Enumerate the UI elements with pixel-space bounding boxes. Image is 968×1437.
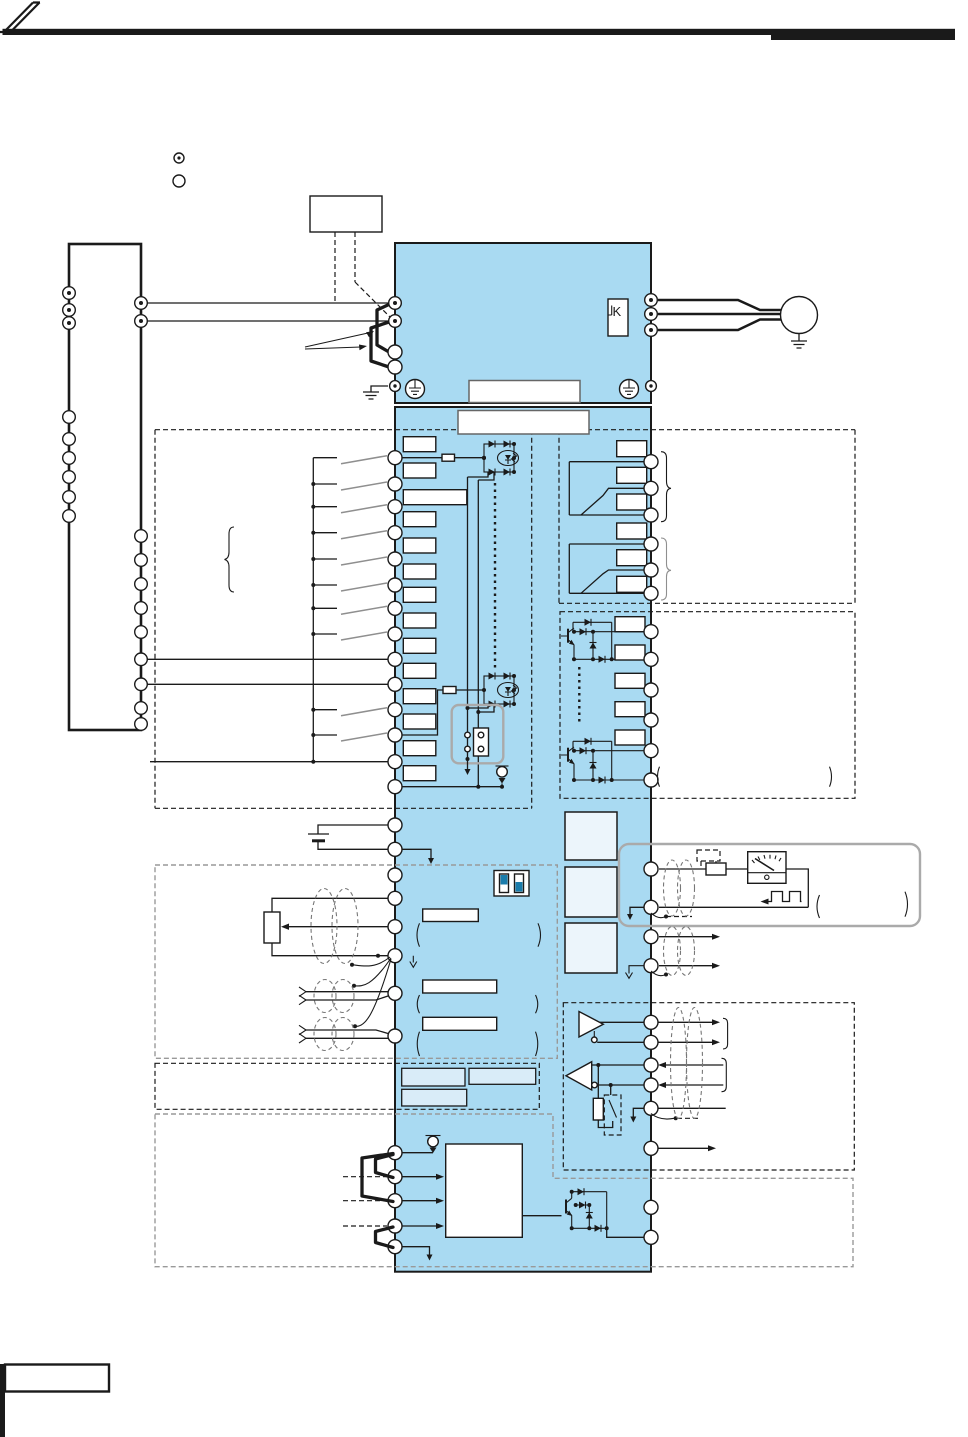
input-terminal [389, 297, 402, 310]
current-sensor-box: K [608, 299, 629, 336]
shielded-cable-icon [314, 980, 354, 1013]
input-resistor [442, 454, 455, 461]
motor-icon [781, 297, 818, 334]
input-switch-rows [311, 456, 387, 764]
control-label-box [458, 411, 589, 435]
display-block [565, 812, 617, 860]
header-rule [3, 29, 956, 35]
display-block [565, 923, 617, 973]
inverter-power-section: K [147, 243, 781, 403]
option-unit-box [310, 196, 391, 318]
legend-control-circuit-terminal-icon [173, 175, 185, 187]
pulse-output-icon [761, 892, 802, 905]
shielded-cable-icon [664, 927, 695, 976]
terminating-resistor-icon [593, 1098, 603, 1120]
analog-meter-icon [748, 852, 786, 884]
input-group-brace [225, 527, 235, 592]
wiring-diagram: K [0, 0, 968, 1437]
relay-brace [661, 538, 671, 600]
brand-logo [0, 3, 40, 33]
page-header [0, 3, 955, 188]
shielded-cable-icon [671, 1008, 703, 1119]
protective-earth-icon [406, 380, 425, 399]
earth-ground-icon [791, 341, 807, 348]
input-terminal [389, 315, 402, 328]
calibration-resistor [697, 850, 726, 875]
output-terminal [645, 294, 658, 307]
earth-ground-icon [363, 392, 379, 399]
pe-terminal [646, 381, 657, 392]
power-supply-box [63, 244, 148, 730]
jumper-link-icon [371, 321, 392, 367]
protective-earth-icon [620, 380, 639, 399]
annotation-parens [817, 892, 908, 918]
shielded-cable-icon [311, 889, 358, 964]
potentiometer-icon [264, 912, 280, 943]
page-footer-tab [0, 1364, 109, 1437]
output-terminal [645, 324, 658, 337]
sensor-label: K [613, 304, 622, 319]
dc-terminal [388, 360, 402, 374]
wire-break-chevrons [299, 987, 306, 1043]
dip-switch-icon [494, 871, 529, 897]
output-terminal [645, 308, 658, 321]
ground-terminal [390, 381, 401, 392]
manual-page: K [0, 0, 968, 1437]
safety-logic-box [446, 1144, 523, 1237]
dc-terminal [388, 345, 402, 359]
jumper-link-icon [377, 303, 392, 352]
display-block [565, 867, 617, 917]
relay-brace [661, 452, 671, 522]
header-rule-step [771, 35, 955, 40]
motor [781, 297, 818, 349]
battery-icon [308, 834, 329, 841]
shielded-cable-icon [314, 1018, 354, 1051]
rating-label-box [469, 381, 580, 403]
wire-group-brackets [722, 1018, 728, 1091]
input-resistor [443, 687, 456, 694]
annotation-parens [658, 767, 832, 787]
